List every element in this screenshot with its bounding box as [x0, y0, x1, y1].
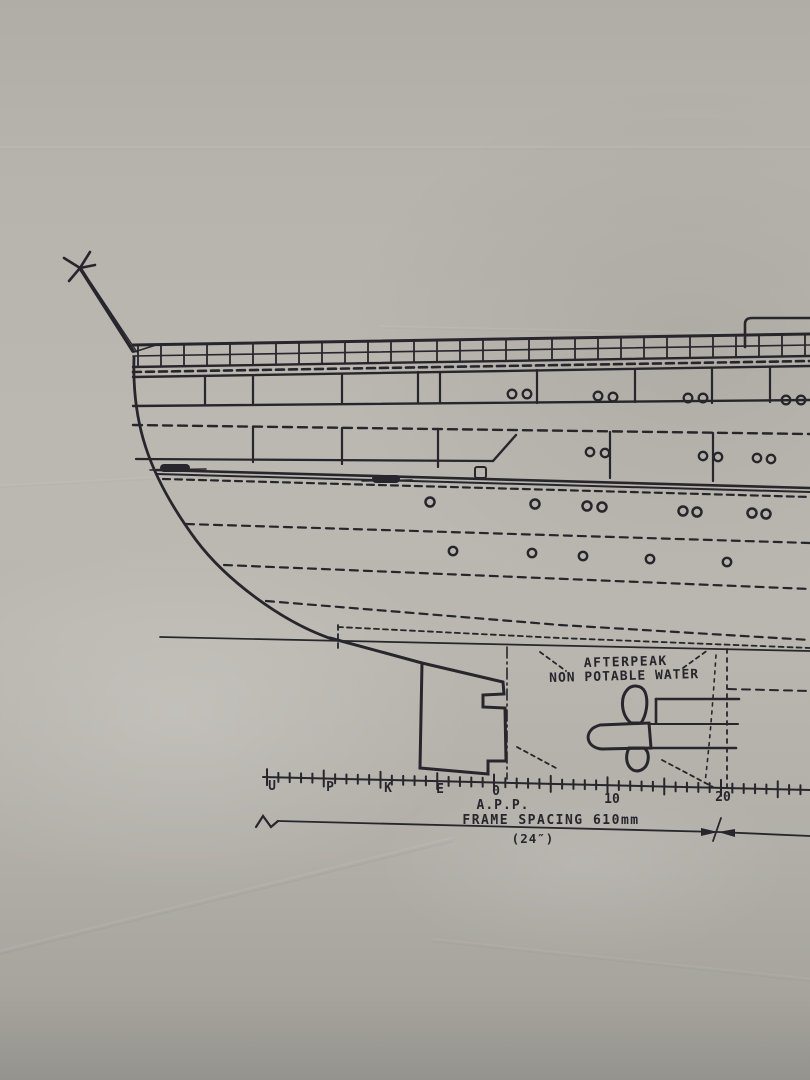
- shaft-bossing: [651, 699, 739, 748]
- frame-number-20: 20: [715, 790, 731, 805]
- hull-portholes-row-2: [449, 547, 731, 566]
- aft-deckhouse: [745, 318, 810, 347]
- band2-deck-dashed-line: [133, 425, 810, 434]
- band2-bottom-line: [136, 459, 493, 461]
- deckhouse-corner-diagonal: [493, 435, 516, 461]
- frame-letter-u: U: [268, 779, 276, 794]
- aft-perpendicular-label: A.P.P.: [477, 798, 530, 813]
- frame-spacing-inches: (24″): [512, 831, 555, 846]
- frame-number-0: 0: [492, 784, 500, 799]
- frame-letter-e: E: [436, 782, 444, 797]
- frame-letter-p: P: [326, 780, 334, 795]
- band2-panel-dividers: [253, 427, 713, 481]
- paper-photo: AFTERPEAK NON POTABLE WATER U P K E 0 A.…: [0, 0, 810, 1080]
- frame-spacing-dimension: FRAME SPACING 610mm (24″): [256, 813, 810, 846]
- tank-level-dashed: [728, 689, 810, 691]
- frame-letter-k: K: [384, 781, 392, 796]
- dimension-break-zigzag: [256, 816, 278, 827]
- stern-counter-curve: [134, 357, 332, 639]
- propeller-blade-lower: [627, 748, 649, 771]
- stern-flagstaff: [64, 252, 137, 352]
- waterline-dashed-2: [224, 565, 810, 589]
- railing-top-rail: [133, 334, 810, 345]
- flagstaff-finial-star: [64, 252, 95, 281]
- afterpeak-label: AFTERPEAK NON POTABLE WATER: [549, 653, 700, 686]
- waterline-dashed-3: [266, 601, 810, 640]
- afterpeak-label-line2: NON POTABLE WATER: [549, 667, 699, 686]
- band1-bottom-line: [133, 400, 810, 406]
- tank-diagonal-dashed: [517, 747, 556, 768]
- superstructure-band-1: [133, 367, 810, 406]
- band1-panel-dividers: [205, 367, 770, 405]
- frame-scale: U P K E 0 A.P.P. 10 20: [263, 769, 810, 813]
- deck-railing: [133, 334, 810, 377]
- tank-top-dashed: [338, 627, 810, 648]
- frame-scale-line: [263, 777, 810, 790]
- tank-diagonal-dashed: [540, 652, 566, 671]
- rudder: [420, 647, 507, 779]
- deck-winch: [475, 467, 486, 478]
- tank-diagonal-dashed: [683, 650, 708, 668]
- hull-portholes-row-1: [426, 498, 771, 519]
- flagstaff-pole: [80, 268, 133, 351]
- hull-section-dotted: [705, 655, 716, 783]
- frame-spacing-text: FRAME SPACING 610mm: [462, 813, 639, 828]
- propeller-blade-upper: [622, 686, 646, 723]
- propeller-hub: [588, 723, 651, 749]
- frame-number-10: 10: [604, 792, 620, 807]
- propeller: [588, 686, 739, 771]
- flagstaff-stay: [91, 283, 137, 352]
- railing-mid-rail: [133, 345, 810, 356]
- band2-portholes: [586, 448, 775, 463]
- ship-stern-profile-drawing: AFTERPEAK NON POTABLE WATER U P K E 0 A.…: [0, 0, 810, 1080]
- deckhouse-outline: [745, 318, 810, 347]
- waterline-dashed-1: [186, 524, 810, 543]
- superstructure-band-2: [133, 425, 810, 483]
- dimension-tick: [713, 818, 721, 841]
- rudder-outline: [420, 663, 506, 774]
